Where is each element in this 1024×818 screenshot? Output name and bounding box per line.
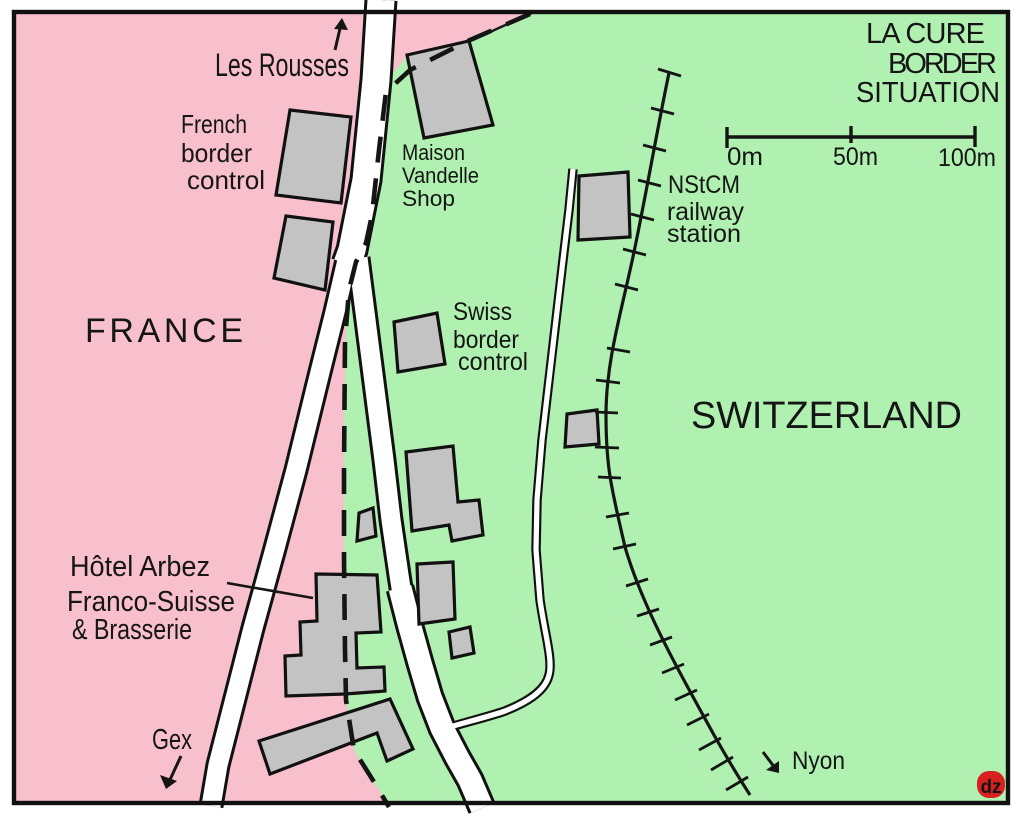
svg-text:NStCM: NStCM xyxy=(668,171,740,199)
svg-text:French: French xyxy=(181,109,247,139)
svg-text:SWITZERLAND: SWITZERLAND xyxy=(691,395,962,437)
svg-text:control: control xyxy=(458,348,528,376)
svg-text:BORDER: BORDER xyxy=(888,48,997,80)
svg-text:& Brasserie: & Brasserie xyxy=(72,614,192,646)
svg-text:border: border xyxy=(181,138,252,168)
svg-text:Swiss: Swiss xyxy=(453,298,512,326)
svg-text:LA CURE: LA CURE xyxy=(866,18,985,50)
svg-text:Nyon: Nyon xyxy=(792,747,845,775)
svg-text:50m: 50m xyxy=(833,143,878,171)
svg-text:100m: 100m xyxy=(938,144,996,172)
svg-text:control: control xyxy=(187,165,265,195)
svg-text:Maison: Maison xyxy=(402,140,465,165)
svg-text:Hôtel Arbez: Hôtel Arbez xyxy=(70,551,210,583)
svg-text:Les Rousses: Les Rousses xyxy=(215,47,349,83)
svg-text:0m: 0m xyxy=(727,143,763,171)
svg-text:Vandelle: Vandelle xyxy=(402,163,479,188)
svg-text:Gex: Gex xyxy=(152,724,192,756)
svg-text:dz: dz xyxy=(980,777,1001,798)
svg-text:station: station xyxy=(667,220,741,248)
svg-text:Shop: Shop xyxy=(402,186,455,211)
svg-text:SITUATION: SITUATION xyxy=(856,77,1000,109)
